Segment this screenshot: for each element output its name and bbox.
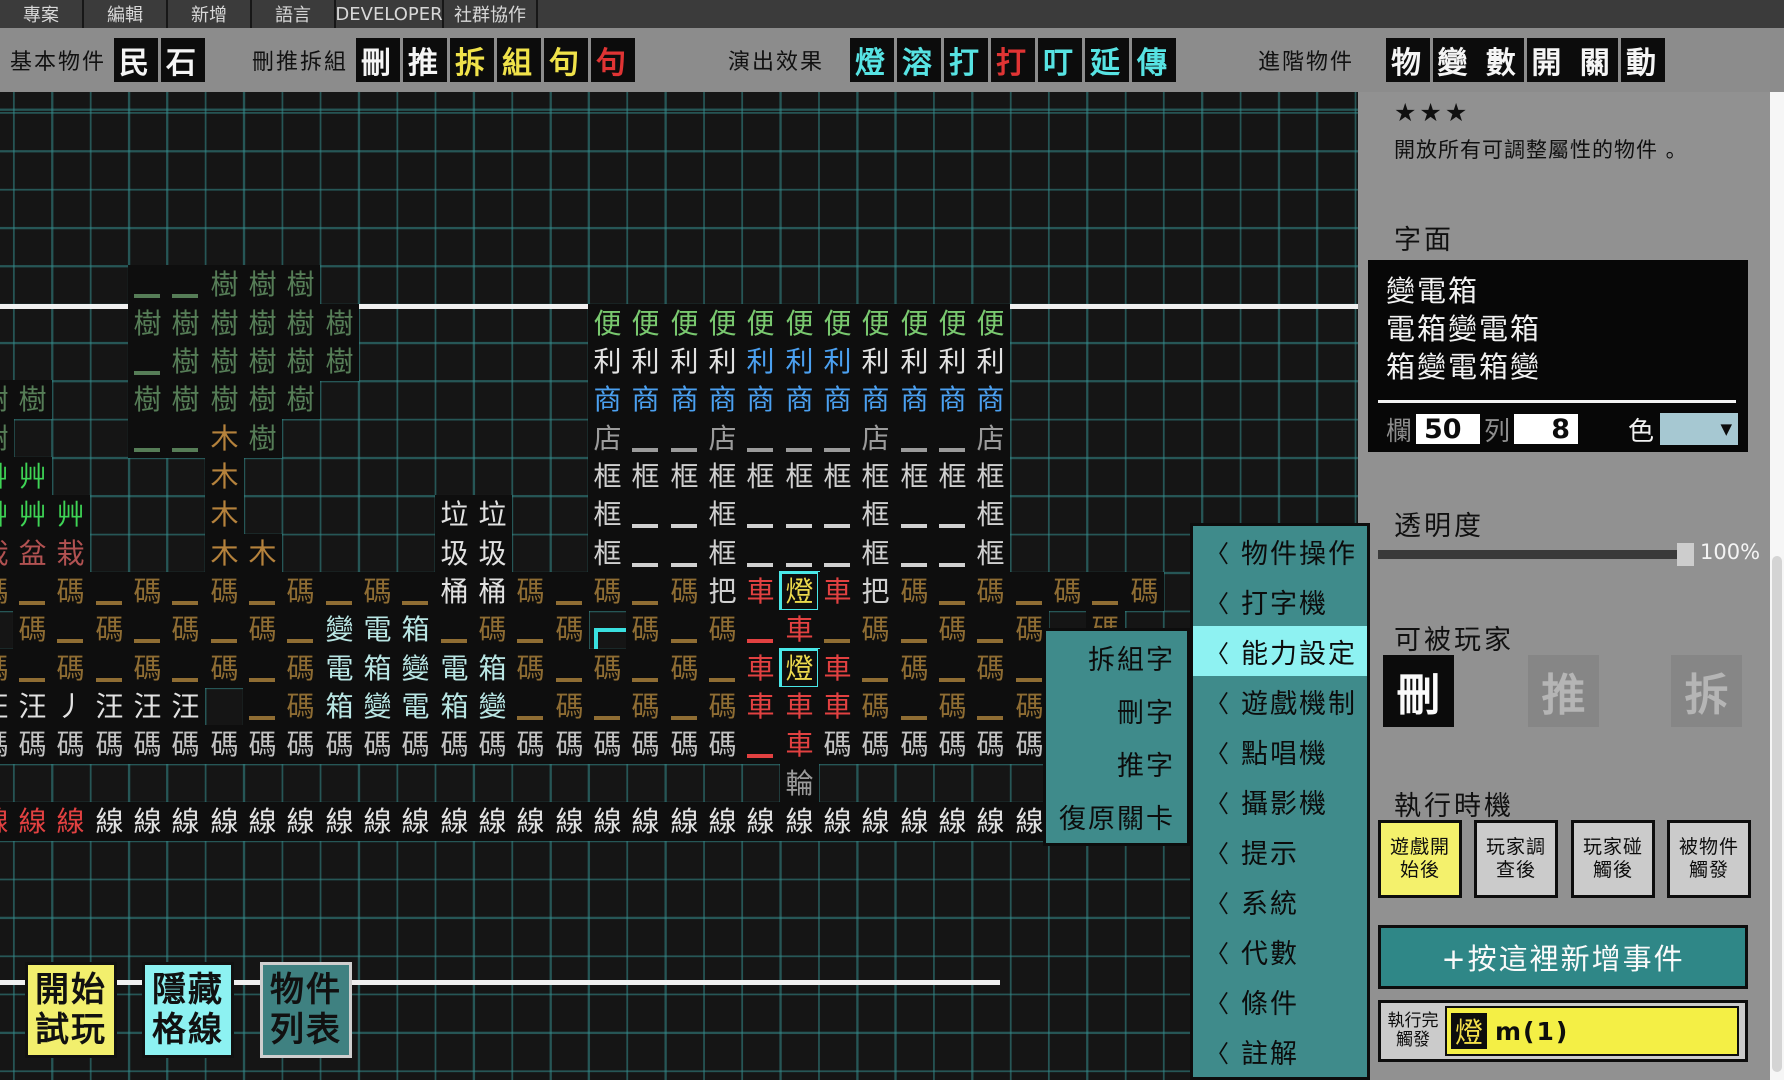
tile-桶[interactable]: 桶 [435, 572, 474, 611]
tile-underscore[interactable] [626, 649, 665, 688]
tile-樹[interactable]: 樹 [281, 380, 320, 419]
tile-碼[interactable]: 碼 [511, 572, 550, 611]
tile-underscore[interactable] [933, 419, 972, 458]
tile-碼[interactable]: 碼 [895, 649, 934, 688]
tile-商[interactable]: 商 [818, 380, 857, 419]
tile-框[interactable]: 框 [741, 457, 780, 496]
tile-圾[interactable]: 圾 [473, 534, 512, 573]
tile-利[interactable]: 利 [818, 342, 857, 381]
tile-汪[interactable]: 汪 [90, 687, 129, 726]
tile-框[interactable]: 框 [665, 457, 704, 496]
tile-商[interactable]: 商 [665, 380, 704, 419]
tile-underscore[interactable] [818, 534, 857, 573]
tile-碼[interactable]: 碼 [243, 610, 282, 649]
tile-underscore[interactable] [665, 419, 704, 458]
tile-商[interactable]: 商 [703, 380, 742, 419]
tile-便[interactable]: 便 [626, 304, 665, 343]
tile-框[interactable]: 框 [703, 495, 742, 534]
tile-樹[interactable]: 樹 [243, 419, 282, 458]
category-menu-item[interactable]: 〈註解 [1193, 1026, 1367, 1076]
tile-underscore[interactable] [128, 610, 167, 649]
tile-underscore[interactable] [741, 419, 780, 458]
tile-underscore[interactable] [703, 649, 742, 688]
opacity-slider[interactable] [1378, 550, 1690, 559]
tile-碼[interactable]: 碼 [205, 725, 244, 764]
start-playtest-button[interactable]: 開始試玩 [25, 962, 117, 1058]
tile-電[interactable]: 電 [320, 649, 359, 688]
tile-underscore[interactable] [933, 534, 972, 573]
tile-樹[interactable]: 樹 [205, 265, 244, 304]
tile-線[interactable]: 線 [703, 802, 742, 841]
tile-碼[interactable]: 碼 [626, 725, 665, 764]
tile-艸[interactable]: 艸 [51, 495, 90, 534]
tile-碼[interactable]: 碼 [550, 725, 589, 764]
level-canvas[interactable]: 樹樹樹樹樹樹樹樹樹便便便便便便便便便便便樹樹樹樹樹利利利利利利利利利利利樹樹樹樹… [0, 92, 1358, 1080]
tile-便[interactable]: 便 [971, 304, 1010, 343]
tile-線[interactable]: 線 [550, 802, 589, 841]
tile-underscore[interactable] [550, 572, 589, 611]
tile-碼[interactable]: 碼 [818, 725, 857, 764]
tile-碼[interactable]: 碼 [396, 725, 435, 764]
tile-車[interactable]: 車 [741, 572, 780, 611]
tile-underscore[interactable] [665, 534, 704, 573]
tile-碼[interactable]: 碼 [358, 572, 397, 611]
tile-商[interactable]: 商 [971, 380, 1010, 419]
tile-木[interactable]: 木 [205, 534, 244, 573]
tile-碼[interactable]: 碼 [13, 610, 52, 649]
tile-利[interactable]: 利 [665, 342, 704, 381]
tile-汪[interactable]: 汪 [13, 687, 52, 726]
tile-碼[interactable]: 碼 [588, 725, 627, 764]
timing-button-1[interactable]: 遊戲開始後 [1378, 820, 1462, 898]
toolbar-button-物[interactable]: 物 [1386, 38, 1430, 82]
tile-利[interactable]: 利 [895, 342, 934, 381]
tile-框[interactable]: 框 [588, 457, 627, 496]
tile-線[interactable]: 線 [0, 802, 14, 841]
tile-碼[interactable]: 碼 [281, 725, 320, 764]
tile-underscore[interactable] [665, 495, 704, 534]
word-menu-item[interactable]: 刪字 [1046, 684, 1187, 737]
menu-5[interactable]: DEVELOPER [336, 0, 444, 28]
tile-車[interactable]: 車 [780, 725, 819, 764]
tile-樹[interactable]: 樹 [320, 304, 359, 343]
tile-underscore[interactable] [243, 687, 282, 726]
tile-線[interactable]: 線 [895, 802, 934, 841]
playable-刪-button[interactable]: 刪 [1383, 655, 1454, 727]
category-menu-item[interactable]: 〈系統 [1193, 876, 1367, 926]
tile-碼[interactable]: 碼 [856, 687, 895, 726]
tile-碼[interactable]: 碼 [51, 649, 90, 688]
tile-便[interactable]: 便 [703, 304, 742, 343]
word-menu-item[interactable]: 拆組字 [1046, 631, 1187, 684]
tile-商[interactable]: 商 [780, 380, 819, 419]
tile-碼[interactable]: 碼 [473, 610, 512, 649]
tile-線[interactable]: 線 [243, 802, 282, 841]
tile-圾[interactable]: 圾 [435, 534, 474, 573]
tile-垃[interactable]: 垃 [435, 495, 474, 534]
tile-碼[interactable]: 碼 [626, 687, 665, 726]
tile-碼[interactable]: 碼 [90, 610, 129, 649]
tile-樹[interactable]: 樹 [128, 380, 167, 419]
tile-underscore[interactable] [971, 687, 1010, 726]
tile-利[interactable]: 利 [703, 342, 742, 381]
tile-樹[interactable]: 樹 [13, 380, 52, 419]
tile-樹[interactable]: 樹 [166, 304, 205, 343]
category-menu-item[interactable]: 〈攝影機 [1193, 776, 1367, 826]
tile-underscore[interactable] [741, 534, 780, 573]
tile-車[interactable]: 車 [780, 610, 819, 649]
tile-利[interactable]: 利 [856, 342, 895, 381]
toolbar-button-打[interactable]: 打 [991, 38, 1035, 82]
tile-underscore[interactable] [128, 419, 167, 458]
tile-碼[interactable]: 碼 [895, 725, 934, 764]
tile-線[interactable]: 線 [90, 802, 129, 841]
tile-underscore[interactable] [51, 610, 90, 649]
tile-線[interactable]: 線 [320, 802, 359, 841]
tile-箱[interactable]: 箱 [435, 687, 474, 726]
tile-桶[interactable]: 桶 [473, 572, 512, 611]
tile-車[interactable]: 車 [741, 687, 780, 726]
toolbar-button-動[interactable]: 動 [1621, 38, 1665, 82]
tile-underscore[interactable] [895, 419, 934, 458]
tile-碼[interactable]: 碼 [128, 649, 167, 688]
tile-樹[interactable]: 樹 [320, 342, 359, 381]
tile-丿[interactable]: 丿 [51, 687, 90, 726]
tile-underscore[interactable] [741, 610, 780, 649]
tile-underscore[interactable] [895, 687, 934, 726]
tile-underscore[interactable] [626, 572, 665, 611]
tile-underscore[interactable] [665, 687, 704, 726]
tile-線[interactable]: 線 [588, 802, 627, 841]
tile-變[interactable]: 變 [358, 687, 397, 726]
tile-underscore[interactable] [243, 649, 282, 688]
menu-6[interactable]: 社群協作 [444, 0, 538, 28]
tile-碼[interactable]: 碼 [0, 725, 14, 764]
tile-商[interactable]: 商 [933, 380, 972, 419]
tile-underscore[interactable] [128, 265, 167, 304]
rows-input[interactable]: 8 [1514, 414, 1578, 444]
tile-汪[interactable]: 汪 [166, 687, 205, 726]
tile-樹[interactable]: 樹 [281, 265, 320, 304]
tile-電[interactable]: 電 [358, 610, 397, 649]
tile-underscore[interactable] [166, 572, 205, 611]
tile-underscore[interactable] [780, 534, 819, 573]
tile-框[interactable]: 框 [856, 534, 895, 573]
tile-線[interactable]: 線 [166, 802, 205, 841]
menu-4[interactable]: 語言 [252, 0, 336, 28]
tile-樹[interactable]: 樹 [0, 419, 14, 458]
tile-框[interactable]: 框 [780, 457, 819, 496]
tile-underscore[interactable] [895, 495, 934, 534]
tile-underscore[interactable] [933, 495, 972, 534]
add-event-button[interactable]: +按這裡新增事件 [1378, 925, 1748, 989]
tile-碼[interactable]: 碼 [0, 649, 14, 688]
category-menu-item[interactable]: 〈代數 [1193, 926, 1367, 976]
tile-框[interactable]: 框 [588, 534, 627, 573]
tile-車[interactable]: 車 [780, 687, 819, 726]
tile-框[interactable]: 框 [856, 457, 895, 496]
tile-underscore[interactable] [856, 649, 895, 688]
toolbar-button-拆[interactable]: 拆 [450, 38, 494, 82]
tile-栽[interactable]: 栽 [51, 534, 90, 573]
tile-樹[interactable]: 樹 [0, 380, 14, 419]
tile-艸[interactable]: 艸 [0, 457, 14, 496]
panel-scrollbar[interactable] [1770, 92, 1784, 1080]
object-list-button[interactable]: 物件列表 [260, 962, 352, 1058]
tile-線[interactable]: 線 [626, 802, 665, 841]
tile-碼[interactable]: 碼 [90, 725, 129, 764]
tile-underscore[interactable] [665, 610, 704, 649]
tile-underscore[interactable] [780, 495, 819, 534]
tile-碼[interactable]: 碼 [895, 572, 934, 611]
tile-利[interactable]: 利 [741, 342, 780, 381]
tile-框[interactable]: 框 [703, 457, 742, 496]
tile-underscore[interactable] [281, 610, 320, 649]
tile-樹[interactable]: 樹 [281, 304, 320, 343]
tile-艸[interactable]: 艸 [0, 495, 14, 534]
category-menu-item[interactable]: 〈打字機 [1193, 576, 1367, 626]
tile-underscore[interactable] [511, 610, 550, 649]
tile-碼[interactable]: 碼 [205, 572, 244, 611]
tile-箱[interactable]: 箱 [396, 610, 435, 649]
tile-垃[interactable]: 垃 [473, 495, 512, 534]
tile-underscore[interactable] [13, 572, 52, 611]
tile-車[interactable]: 車 [818, 649, 857, 688]
tile-underscore[interactable] [933, 649, 972, 688]
tile-underscore[interactable] [128, 342, 167, 381]
tile-碼[interactable]: 碼 [1125, 572, 1164, 611]
tile-碼[interactable]: 碼 [703, 725, 742, 764]
tile-電[interactable]: 電 [435, 649, 474, 688]
tile-underscore[interactable] [895, 534, 934, 573]
tile-碼[interactable]: 碼 [665, 725, 704, 764]
tile-underscore[interactable] [626, 534, 665, 573]
tile-線[interactable]: 線 [396, 802, 435, 841]
tile-underscore[interactable] [166, 419, 205, 458]
playable-推-button[interactable]: 推 [1528, 655, 1599, 727]
tile-碼[interactable]: 碼 [243, 725, 282, 764]
tile-線[interactable]: 線 [205, 802, 244, 841]
tile-underscore[interactable] [320, 572, 359, 611]
tile-underscore[interactable] [90, 649, 129, 688]
tile-利[interactable]: 利 [588, 342, 627, 381]
tile-underscore[interactable] [166, 649, 205, 688]
tile-underscore[interactable] [818, 610, 857, 649]
toolbar-button-句[interactable]: 句 [591, 38, 635, 82]
tile-艸[interactable]: 艸 [13, 495, 52, 534]
tile-underscore[interactable] [396, 572, 435, 611]
tile-碼[interactable]: 碼 [281, 687, 320, 726]
menu-3[interactable]: 新增 [168, 0, 252, 28]
tile-輪[interactable]: 輪 [780, 764, 819, 803]
tile-店[interactable]: 店 [588, 419, 627, 458]
tile-箱[interactable]: 箱 [473, 649, 512, 688]
tile-線[interactable]: 線 [51, 802, 90, 841]
tile-框[interactable]: 框 [971, 457, 1010, 496]
tile-碼[interactable]: 碼 [588, 649, 627, 688]
tile-樹[interactable]: 樹 [166, 342, 205, 381]
toolbar-button-變數[interactable]: 變 數 [1433, 38, 1524, 82]
tile-碼[interactable]: 碼 [971, 572, 1010, 611]
timing-button-4[interactable]: 被物件觸發 [1667, 820, 1751, 898]
tile-艸[interactable]: 艸 [13, 457, 52, 496]
tile-利[interactable]: 利 [971, 342, 1010, 381]
face-text[interactable]: 變電箱 電箱變電箱 箱變電箱變 [1386, 272, 1541, 386]
tile-碼[interactable]: 碼 [665, 572, 704, 611]
tile-汪[interactable]: 汪 [128, 687, 167, 726]
word-menu-item[interactable]: 推字 [1046, 737, 1187, 790]
tile-underscore[interactable] [626, 419, 665, 458]
tile-利[interactable]: 利 [780, 342, 819, 381]
tile-便[interactable]: 便 [665, 304, 704, 343]
tile-線[interactable]: 線 [13, 802, 52, 841]
tile-木[interactable]: 木 [205, 457, 244, 496]
toolbar-button-刪[interactable]: 刪 [356, 38, 400, 82]
event-item[interactable]: 執行完觸發 燈 m(1) [1378, 1000, 1748, 1062]
tile-木[interactable]: 木 [205, 495, 244, 534]
tile-車[interactable]: 車 [818, 687, 857, 726]
tile-店[interactable]: 店 [856, 419, 895, 458]
toolbar-button-溶[interactable]: 溶 [897, 38, 941, 82]
scrollbar-thumb[interactable] [1772, 556, 1782, 1072]
tile-碼[interactable]: 碼 [51, 725, 90, 764]
toolbar-button-石[interactable]: 石 [161, 38, 205, 82]
toolbar-button-民[interactable]: 民 [114, 38, 158, 82]
tile-線[interactable]: 線 [358, 802, 397, 841]
tile-碼[interactable]: 碼 [205, 649, 244, 688]
hide-gridlines-button[interactable]: 隱藏格線 [142, 962, 234, 1058]
tile-框[interactable]: 框 [626, 457, 665, 496]
tile-樹[interactable]: 樹 [243, 304, 282, 343]
word-menu-item[interactable]: 復原關卡 [1046, 790, 1187, 843]
tile-碼[interactable]: 碼 [511, 725, 550, 764]
tile-便[interactable]: 便 [818, 304, 857, 343]
tile-便[interactable]: 便 [933, 304, 972, 343]
category-menu-item[interactable]: 〈條件 [1193, 976, 1367, 1026]
tile-碼[interactable]: 碼 [933, 725, 972, 764]
tile-underscore[interactable] [550, 649, 589, 688]
tile-箱[interactable]: 箱 [358, 649, 397, 688]
tile-店[interactable]: 店 [703, 419, 742, 458]
tile-樹[interactable]: 樹 [281, 342, 320, 381]
tile-樹[interactable]: 樹 [166, 380, 205, 419]
event-field[interactable]: 燈 m(1) [1445, 1006, 1739, 1056]
category-menu-item[interactable]: 〈遊戲機制 [1193, 676, 1367, 726]
tile-線[interactable]: 線 [511, 802, 550, 841]
tile-線[interactable]: 線 [933, 802, 972, 841]
tile-underscore[interactable] [818, 495, 857, 534]
tile-框[interactable]: 框 [971, 534, 1010, 573]
toolbar-button-傳[interactable]: 傳 [1132, 38, 1176, 82]
tile-店[interactable]: 店 [971, 419, 1010, 458]
tile-碼[interactable]: 碼 [550, 687, 589, 726]
tile-碼[interactable]: 碼 [13, 725, 52, 764]
tile-碼[interactable]: 碼 [281, 572, 320, 611]
toolbar-button-叮[interactable]: 叮 [1038, 38, 1082, 82]
tile-線[interactable]: 線 [971, 802, 1010, 841]
tile-碼[interactable]: 碼 [1048, 572, 1087, 611]
playable-拆-button[interactable]: 拆 [1671, 655, 1742, 727]
tile-利[interactable]: 利 [626, 342, 665, 381]
toolbar-button-打[interactable]: 打 [944, 38, 988, 82]
tile-樹[interactable]: 樹 [205, 380, 244, 419]
tile-碼[interactable]: 碼 [281, 649, 320, 688]
toolbar-button-推[interactable]: 推 [403, 38, 447, 82]
tile-碼[interactable]: 碼 [0, 572, 14, 611]
category-menu-item[interactable]: 〈物件操作 [1193, 526, 1367, 576]
tile-樹[interactable]: 樹 [243, 265, 282, 304]
tile-碼[interactable]: 碼 [358, 725, 397, 764]
tile-樹[interactable]: 樹 [205, 304, 244, 343]
menu-1[interactable]: 專案 [0, 0, 84, 28]
tile-碼[interactable]: 碼 [128, 725, 167, 764]
tile-燈[interactable]: 燈 [780, 649, 819, 688]
tile-便[interactable]: 便 [588, 304, 627, 343]
tile-框[interactable]: 框 [856, 495, 895, 534]
tile-碼[interactable]: 碼 [933, 687, 972, 726]
menu-2[interactable]: 編輯 [84, 0, 168, 28]
tile-商[interactable]: 商 [741, 380, 780, 419]
tile-碼[interactable]: 碼 [51, 572, 90, 611]
tile-碼[interactable]: 碼 [473, 725, 512, 764]
timing-button-3[interactable]: 玩家碰觸後 [1571, 820, 1655, 898]
tile-樹[interactable]: 樹 [243, 342, 282, 381]
tile-線[interactable]: 線 [281, 802, 320, 841]
tile-線[interactable]: 線 [818, 802, 857, 841]
tile-碼[interactable]: 碼 [550, 610, 589, 649]
tile-underscore[interactable] [741, 725, 780, 764]
tile-underscore[interactable] [588, 687, 627, 726]
tile-underscore[interactable] [1086, 572, 1125, 611]
tile-碼[interactable]: 碼 [128, 572, 167, 611]
tile-碼[interactable]: 碼 [665, 649, 704, 688]
tile-框[interactable]: 框 [818, 457, 857, 496]
opacity-slider-handle[interactable] [1677, 543, 1694, 566]
toolbar-button-組[interactable]: 組 [497, 38, 541, 82]
toolbar-button-延[interactable]: 延 [1085, 38, 1129, 82]
tile-框[interactable]: 框 [971, 495, 1010, 534]
category-menu-item[interactable]: 〈點唱機 [1193, 726, 1367, 776]
tile-碼[interactable]: 碼 [166, 725, 205, 764]
tile-碼[interactable]: 碼 [933, 610, 972, 649]
tile-碼[interactable]: 碼 [703, 687, 742, 726]
tile-碼[interactable]: 碼 [971, 649, 1010, 688]
tile-碼[interactable]: 碼 [971, 725, 1010, 764]
tile-線[interactable]: 線 [665, 802, 704, 841]
tile-樹[interactable]: 樹 [128, 304, 167, 343]
tile-木[interactable]: 木 [205, 419, 244, 458]
tile-車[interactable]: 車 [818, 572, 857, 611]
tile-利[interactable]: 利 [933, 342, 972, 381]
tile-underscore[interactable] [1010, 572, 1049, 611]
category-menu-item[interactable]: 〈提示 [1193, 826, 1367, 876]
cols-input[interactable]: 50 [1416, 414, 1480, 444]
tile-框[interactable]: 框 [933, 457, 972, 496]
tile-商[interactable]: 商 [588, 380, 627, 419]
tile-線[interactable]: 線 [780, 802, 819, 841]
tile-栽[interactable]: 栽 [0, 534, 14, 573]
tile-線[interactable]: 線 [741, 802, 780, 841]
tile-樹[interactable]: 樹 [243, 380, 282, 419]
tile-框[interactable]: 框 [703, 534, 742, 573]
tile-樹[interactable]: 樹 [205, 342, 244, 381]
tile-碼[interactable]: 碼 [703, 610, 742, 649]
tile-underscore[interactable] [511, 687, 550, 726]
tile-碼[interactable]: 碼 [626, 610, 665, 649]
toolbar-button-句[interactable]: 句 [544, 38, 588, 82]
tile-underscore[interactable] [971, 610, 1010, 649]
tile-碼[interactable]: 碼 [588, 572, 627, 611]
